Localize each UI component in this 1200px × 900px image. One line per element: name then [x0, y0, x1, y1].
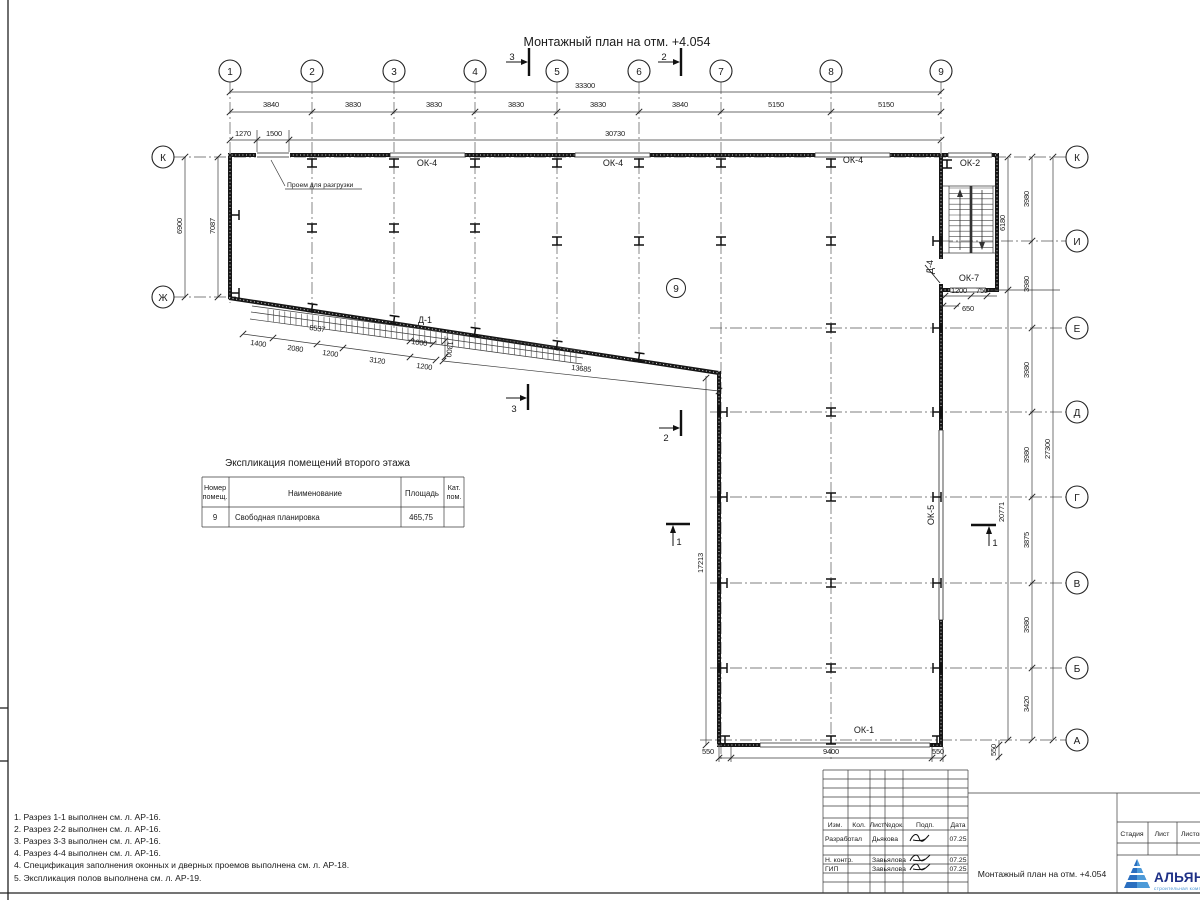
- section-label: 1: [992, 538, 997, 549]
- dim-label: 9400: [823, 747, 839, 756]
- dim-label: 20771: [997, 502, 1006, 522]
- stair-arrow-head: [957, 189, 963, 197]
- dim-label: 550: [989, 744, 998, 756]
- tb-role: Разработал: [825, 835, 862, 843]
- axis-label: Б: [1074, 664, 1081, 675]
- drawing-sheet: Монтажный план на отм. +4.054 1 2 3 4 5 …: [0, 0, 1200, 900]
- walls: [228, 153, 997, 747]
- dim-label: 1400: [250, 338, 267, 349]
- tb-header: Лист: [870, 822, 885, 829]
- col-header: Наименование: [288, 489, 342, 498]
- door-mark: Д-1: [418, 315, 432, 325]
- dim-label: 33300: [575, 81, 595, 90]
- axis-bubbles-left: К Ж: [152, 146, 174, 308]
- axis-label: 8: [828, 67, 834, 78]
- section-label: 3: [511, 404, 516, 415]
- axis-label: И: [1073, 237, 1080, 248]
- dim-label: 3420: [1022, 696, 1031, 712]
- unload-opening-gap: [256, 151, 290, 159]
- section-marks: [506, 48, 996, 546]
- dim-label: 27300: [1043, 439, 1052, 459]
- section-labels: 3 2 3 2 1 1: [509, 52, 997, 549]
- dim-line: [243, 334, 436, 360]
- axis-label: Е: [1074, 324, 1081, 335]
- column-symbol: [716, 159, 726, 167]
- dim-label: 7087: [208, 218, 217, 234]
- column-symbol: [826, 159, 836, 167]
- axis-label: 3: [391, 67, 397, 78]
- column-symbol: [231, 210, 239, 220]
- window-mark: ОК-1: [854, 725, 874, 735]
- col-header: Площадь: [405, 489, 439, 498]
- columns: [231, 159, 952, 744]
- tb-header: Подп.: [916, 822, 934, 829]
- signature: [910, 834, 929, 841]
- table-title: Экспликация помещений второго этажа: [225, 458, 410, 469]
- column-symbol: [826, 237, 836, 245]
- column-symbol: [389, 159, 399, 167]
- note-line: 4. Спецификация заполнения оконных и две…: [14, 860, 349, 870]
- cell-room-number: 9: [213, 513, 217, 522]
- dim-label: 17213: [696, 553, 705, 573]
- section-label: 1: [676, 537, 681, 548]
- axis-label: 2: [309, 67, 315, 78]
- title-block: Изм. Кол. Лист №док. Подп. Дата Разработ…: [825, 822, 1200, 891]
- note-line: 4. Разрез 4-4 выполнен см. л. АР-16.: [14, 848, 161, 858]
- dim-label: 3980: [1022, 276, 1031, 292]
- axis-label: 1: [227, 67, 233, 78]
- wall-openings: [256, 151, 944, 284]
- dim-label: 30730: [605, 129, 625, 138]
- tb-name: Завьялова: [872, 857, 906, 864]
- column-symbol: [307, 159, 317, 167]
- col-header: Номер: [204, 483, 226, 492]
- col-header: Кат.: [448, 483, 461, 492]
- column-symbol: [634, 159, 644, 167]
- sheet-frame: [0, 0, 1200, 900]
- dim-label: 3980: [1022, 617, 1031, 633]
- cell-room-area: 465,75: [409, 513, 434, 522]
- element-marks: ОК-4 ОК-4 ОК-4 ОК-2 ОК-7 ОК-5 ОК-1 Д-1 Д…: [287, 155, 980, 735]
- axis-label: 9: [938, 67, 944, 78]
- logo-text: АЛЬЯНС: [1154, 870, 1200, 885]
- tb-header: Кол.: [852, 822, 866, 829]
- dim-label: 3875: [1022, 532, 1031, 548]
- room-schedule: Экспликация помещений второго этажа Номе…: [203, 458, 462, 522]
- dim-label: 3840: [672, 100, 688, 109]
- dim-label: 6180: [998, 215, 1007, 231]
- axis-label: 5: [554, 67, 560, 78]
- column-symbol: [307, 224, 317, 232]
- tb-stage-header: Стадия: [1120, 831, 1143, 838]
- dim-label: 1200: [416, 361, 433, 372]
- dim-label: 550: [932, 747, 944, 756]
- axis-bubbles-top: 1 2 3 4 5 6 7 8 9: [219, 60, 952, 82]
- drawing-title: Монтажный план на отм. +4.054: [524, 35, 711, 49]
- door-gap: [938, 259, 944, 284]
- opening-note: Проем для разгрузки: [287, 182, 354, 189]
- dim-label: 1000: [411, 337, 428, 348]
- tb-role: Н. контр.: [825, 857, 853, 864]
- tb-stage-header: Листов: [1181, 831, 1200, 838]
- dim-label: 1200: [322, 348, 339, 359]
- dim-label: 3830: [426, 100, 442, 109]
- section-arrow-head: [986, 526, 992, 534]
- column-symbol: [942, 160, 952, 168]
- dim-label: 3980: [1022, 447, 1031, 463]
- dim-label: 3840: [263, 100, 279, 109]
- tb-date: 07.25: [949, 866, 966, 873]
- window-mark: ОК-4: [603, 158, 623, 168]
- dim-label: 1300: [444, 341, 455, 358]
- room-number: 9: [673, 284, 679, 295]
- section-label: 2: [661, 52, 666, 63]
- dim-label: 750: [976, 286, 988, 295]
- axis-label: 6: [636, 67, 642, 78]
- axis-label: Д: [1074, 408, 1081, 419]
- dim-label: 8537: [309, 323, 326, 334]
- section-arrow-head: [521, 59, 528, 65]
- axis-label: В: [1074, 579, 1081, 590]
- section-arrow-head: [670, 525, 676, 533]
- col-header: помещ.: [203, 492, 228, 501]
- tb-header: №док.: [884, 822, 904, 829]
- section-label: 2: [663, 433, 668, 444]
- signature: [910, 855, 930, 861]
- axis-label: К: [1074, 153, 1080, 164]
- dim-label: 3120: [369, 355, 386, 366]
- stair-arrow-head: [979, 242, 985, 250]
- column-symbol: [552, 237, 562, 245]
- dim-label: 1200: [951, 286, 967, 295]
- column-symbol: [716, 237, 726, 245]
- window-mark: ОК-7: [959, 273, 979, 283]
- tb-stage-header: Лист: [1155, 831, 1170, 838]
- section-arrow-head: [520, 395, 527, 401]
- note-line: 3. Разрез 3-3 выполнен см. л. АР-16.: [14, 836, 161, 846]
- dim-label: 3830: [590, 100, 606, 109]
- notes: 1. Разрез 1-1 выполнен см. л. АР-16. 2. …: [14, 812, 349, 883]
- dim-label: 2080: [287, 343, 304, 354]
- signature: [910, 864, 930, 870]
- dimension-ticks: [182, 89, 1056, 761]
- dim-label: 13685: [571, 363, 592, 374]
- dim-label: 3980: [1022, 191, 1031, 207]
- column-symbol: [470, 224, 480, 232]
- tb-header: Дата: [950, 822, 965, 829]
- dim-label: 3830: [508, 100, 524, 109]
- tb-doc-title: Монтажный план на отм. +4.054: [978, 869, 1107, 879]
- window-mark: ОК-5: [926, 505, 936, 525]
- dim-label: 1500: [266, 129, 282, 138]
- column-symbol: [389, 224, 399, 232]
- logo-tagline: строительная компания: [1154, 886, 1200, 891]
- axis-bubbles-right: К И Е Д Г В Б А: [1066, 146, 1088, 751]
- section-arrow-head: [673, 59, 680, 65]
- tb-date: 07.25: [949, 857, 966, 864]
- axis-label: Ж: [158, 293, 168, 304]
- axis-label: 7: [718, 67, 724, 78]
- window-mark: ОК-4: [843, 155, 863, 165]
- tb-name: Дьякова: [872, 836, 898, 843]
- column-symbol: [552, 159, 562, 167]
- note-line: 5. Экспликация полов выполнена см. л. АР…: [14, 873, 201, 883]
- tb-name: Завьялова: [872, 866, 906, 873]
- window-mark: ОК-4: [417, 158, 437, 168]
- axis-label: 4: [472, 67, 478, 78]
- company-logo: АЛЬЯНС строительная компания: [1124, 859, 1200, 891]
- note-line: 2. Разрез 2-2 выполнен см. л. АР-16.: [14, 824, 161, 834]
- column-symbol: [470, 159, 480, 167]
- dim-label: 650: [962, 304, 974, 313]
- note-line: 1. Разрез 1-1 выполнен см. л. АР-16.: [14, 812, 161, 822]
- dim-label: 3830: [345, 100, 361, 109]
- dim-line: [271, 160, 285, 186]
- dim-label: 550: [702, 747, 714, 756]
- tb-header: Изм.: [828, 822, 843, 829]
- window-mark: ОК-2: [960, 158, 980, 168]
- window-symbols: [390, 152, 992, 748]
- axis-label: А: [1074, 736, 1081, 747]
- dim-label: 5150: [768, 100, 784, 109]
- column-symbol: [634, 237, 644, 245]
- tb-date: 07.25: [949, 836, 966, 843]
- section-label: 3: [509, 52, 514, 63]
- axis-label: Г: [1074, 493, 1080, 504]
- tb-role: ГИП: [825, 866, 839, 873]
- col-header: пом.: [447, 492, 462, 501]
- door-mark: Д-4: [925, 260, 935, 274]
- dim-label: 5150: [878, 100, 894, 109]
- cell-room-name: Свободная планировка: [235, 513, 320, 522]
- dim-label: 3980: [1022, 362, 1031, 378]
- dim-label: 6900: [175, 218, 184, 234]
- section-arrow-head: [673, 425, 680, 431]
- axis-label: К: [160, 153, 166, 164]
- dim-label: 1270: [235, 129, 251, 138]
- plan-canvas: Монтажный план на отм. +4.054 1 2 3 4 5 …: [0, 0, 1200, 900]
